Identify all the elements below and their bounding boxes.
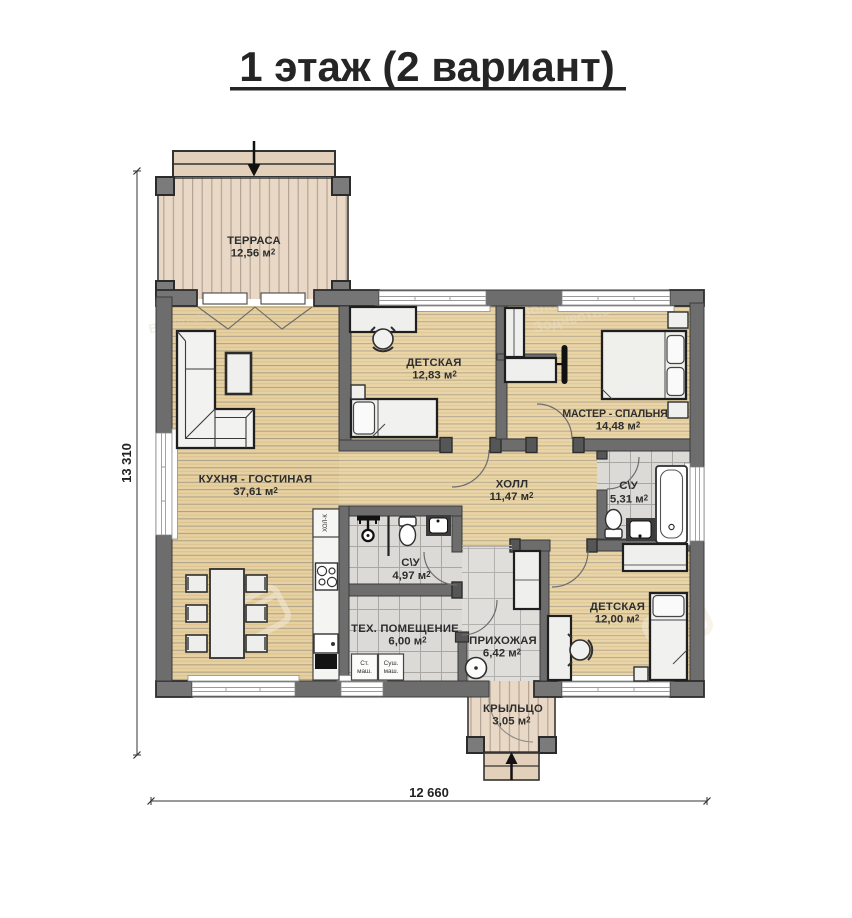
svg-text:12,56 м2: 12,56 м2 [231,247,276,259]
svg-text:ДЕТСКАЯ: ДЕТСКАЯ [406,357,461,369]
svg-text:Ст.: Ст. [360,660,369,667]
svg-text:14,48 м2: 14,48 м2 [596,420,641,432]
svg-text:КУХНЯ - ГОСТИНАЯ: КУХНЯ - ГОСТИНАЯ [199,474,313,486]
svg-text:6,00 м2: 6,00 м2 [388,635,427,647]
svg-text:КРЫЛЬЦО: КРЫЛЬЦО [483,703,543,715]
svg-text:ТЕХ. ПОМЕЩЕНИЕ: ТЕХ. ПОМЕЩЕНИЕ [351,623,459,635]
svg-text:ДЕТСКАЯ: ДЕТСКАЯ [590,601,645,613]
svg-text:13 310: 13 310 [119,443,134,483]
svg-text:МАСТЕР - СПАЛЬНЯ: МАСТЕР - СПАЛЬНЯ [562,408,667,420]
svg-text:37,61 м2: 37,61 м2 [233,486,278,498]
svg-text:ТЕРРАСА: ТЕРРАСА [227,235,281,247]
svg-text:ХОЛ-К: ХОЛ-К [323,514,329,532]
svg-text:12,00 м2: 12,00 м2 [595,613,640,625]
svg-text:12,83 м2: 12,83 м2 [412,369,457,381]
svg-text:11,47 м2: 11,47 м2 [490,491,534,503]
svg-text:С\У: С\У [401,557,420,569]
svg-text:ПРИХОЖАЯ: ПРИХОЖАЯ [469,635,537,647]
svg-text:4,97 м2: 4,97 м2 [392,570,431,582]
svg-text:маш.: маш. [384,668,399,675]
svg-text:3,05 м2: 3,05 м2 [492,715,531,727]
svg-text:ХОЛЛ: ХОЛЛ [496,479,528,491]
svg-text:1 этаж (2 вариант): 1 этаж (2 вариант) [239,43,614,90]
svg-text:6,42 м2: 6,42 м2 [483,647,522,659]
svg-text:Суш.: Суш. [384,660,399,667]
svg-text:маш.: маш. [357,668,372,675]
svg-text:С\У: С\У [619,480,638,492]
svg-text:5,31 м2: 5,31 м2 [610,493,649,505]
svg-text:12 660: 12 660 [409,785,449,800]
